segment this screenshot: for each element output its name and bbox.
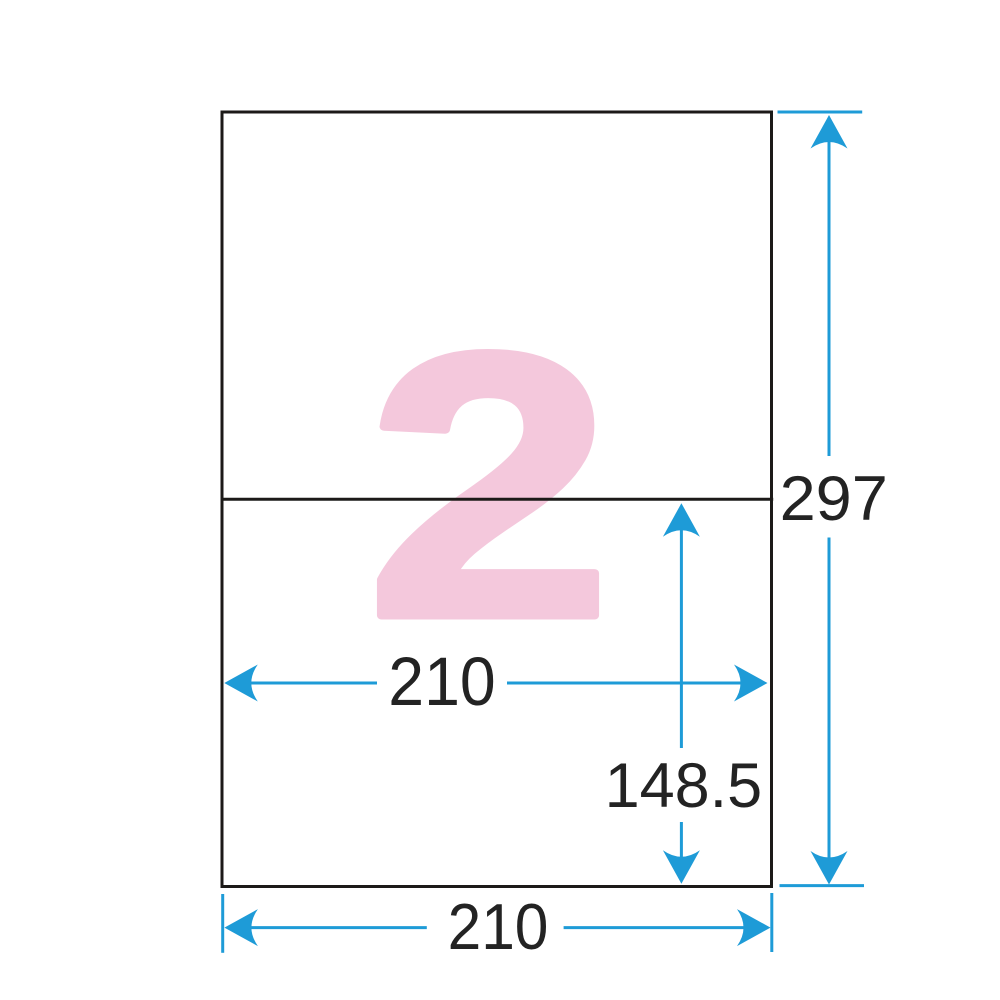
svg-text:148.5: 148.5 (605, 751, 763, 821)
svg-text:2: 2 (366, 275, 612, 695)
svg-text:210: 210 (388, 644, 495, 720)
svg-text:210: 210 (448, 891, 549, 963)
svg-text:297: 297 (780, 463, 888, 534)
